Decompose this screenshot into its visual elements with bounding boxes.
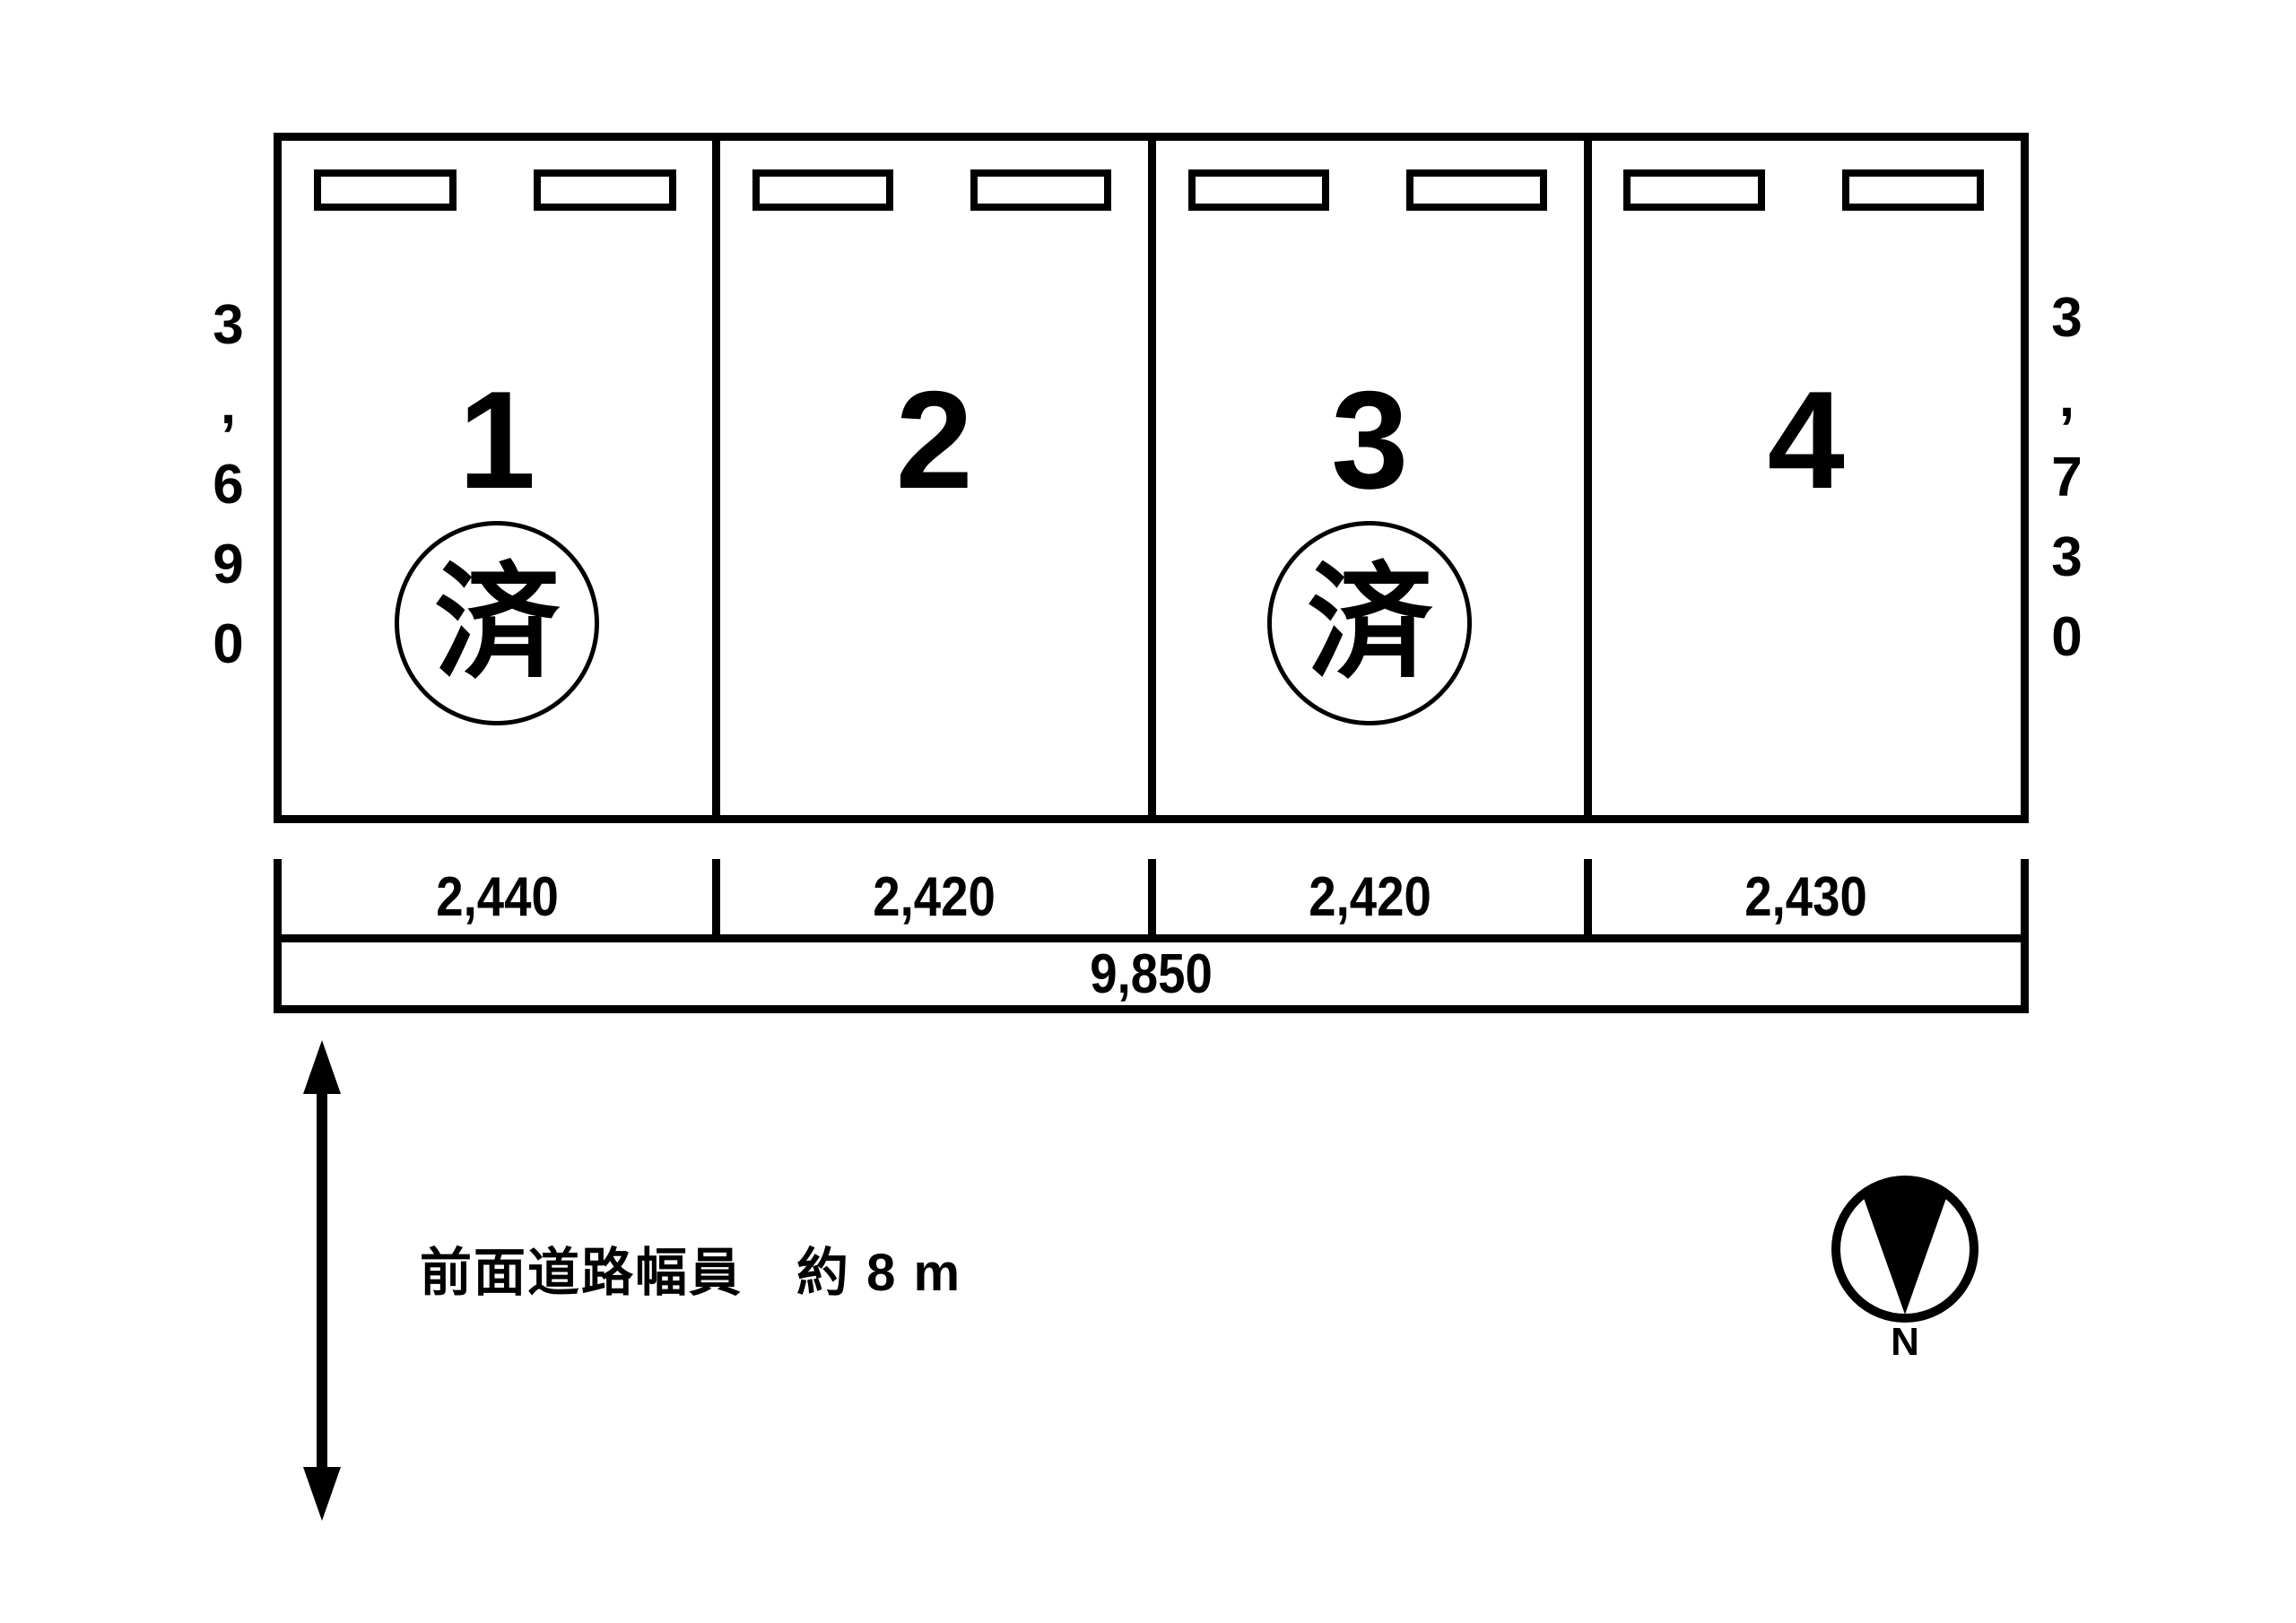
dimension-cell: 2,420 [1156, 859, 1592, 934]
dimension-cell: 2,440 [282, 859, 720, 934]
total-width-dimension: 9,850 [274, 934, 2029, 1013]
wheel-stop-icon [1188, 169, 1329, 211]
wheel-stop-icon [752, 169, 893, 211]
stall-number: 4 [1592, 369, 2022, 509]
stall-width-dimension-row: 2,440 2,420 2,420 2,430 [274, 859, 2029, 934]
stall-width-value: 2,430 [1744, 865, 1867, 929]
parking-stall-1: 1 済 [282, 141, 712, 815]
wheel-stop-icon [970, 169, 1111, 211]
reserved-stamp: 済 [1267, 521, 1472, 725]
right-depth-dimension: 3,730 [2038, 287, 2095, 686]
stall-number: 1 [282, 369, 712, 509]
wheel-stop-icon [1623, 169, 1765, 211]
stall-width-value: 2,440 [436, 865, 559, 929]
compass-north-icon: N [1829, 1171, 1981, 1364]
dimension-cell: 2,420 [720, 859, 1156, 934]
parking-stall-2: 2 [712, 141, 1148, 815]
parking-stall-3: 3 済 [1148, 141, 1584, 815]
stall-number: 2 [720, 369, 1148, 509]
stall-width-value: 2,420 [1309, 865, 1431, 929]
compass-north-label: N [1891, 1320, 1919, 1364]
parking-stall-4: 4 [1584, 141, 2022, 815]
wheel-stop-icon [1842, 169, 1984, 211]
parking-layout-diagram: 3,690 3,730 1 済 2 3 済 4 [0, 0, 2296, 1623]
reserved-stamp-text: 済 [434, 560, 560, 686]
road-width-double-arrow-icon [295, 1038, 349, 1523]
stall-width-value: 2,420 [873, 865, 996, 929]
width-dimensions: 2,440 2,420 2,420 2,430 9,850 [274, 859, 2029, 1013]
parking-lot-outline: 1 済 2 3 済 4 [274, 133, 2029, 823]
stall-number: 3 [1156, 369, 1584, 509]
total-width-value: 9,850 [1090, 942, 1213, 1006]
reserved-stamp-text: 済 [1307, 560, 1432, 686]
wheel-stop-icon [314, 169, 457, 211]
left-depth-dimension: 3,690 [199, 294, 257, 693]
wheel-stop-icon [1406, 169, 1547, 211]
dimension-cell: 2,430 [1592, 859, 2022, 934]
wheel-stop-icon [534, 169, 676, 211]
front-road-width-label: 前面道路幅員 約 8 m [420, 1230, 961, 1306]
reserved-stamp: 済 [395, 521, 599, 725]
